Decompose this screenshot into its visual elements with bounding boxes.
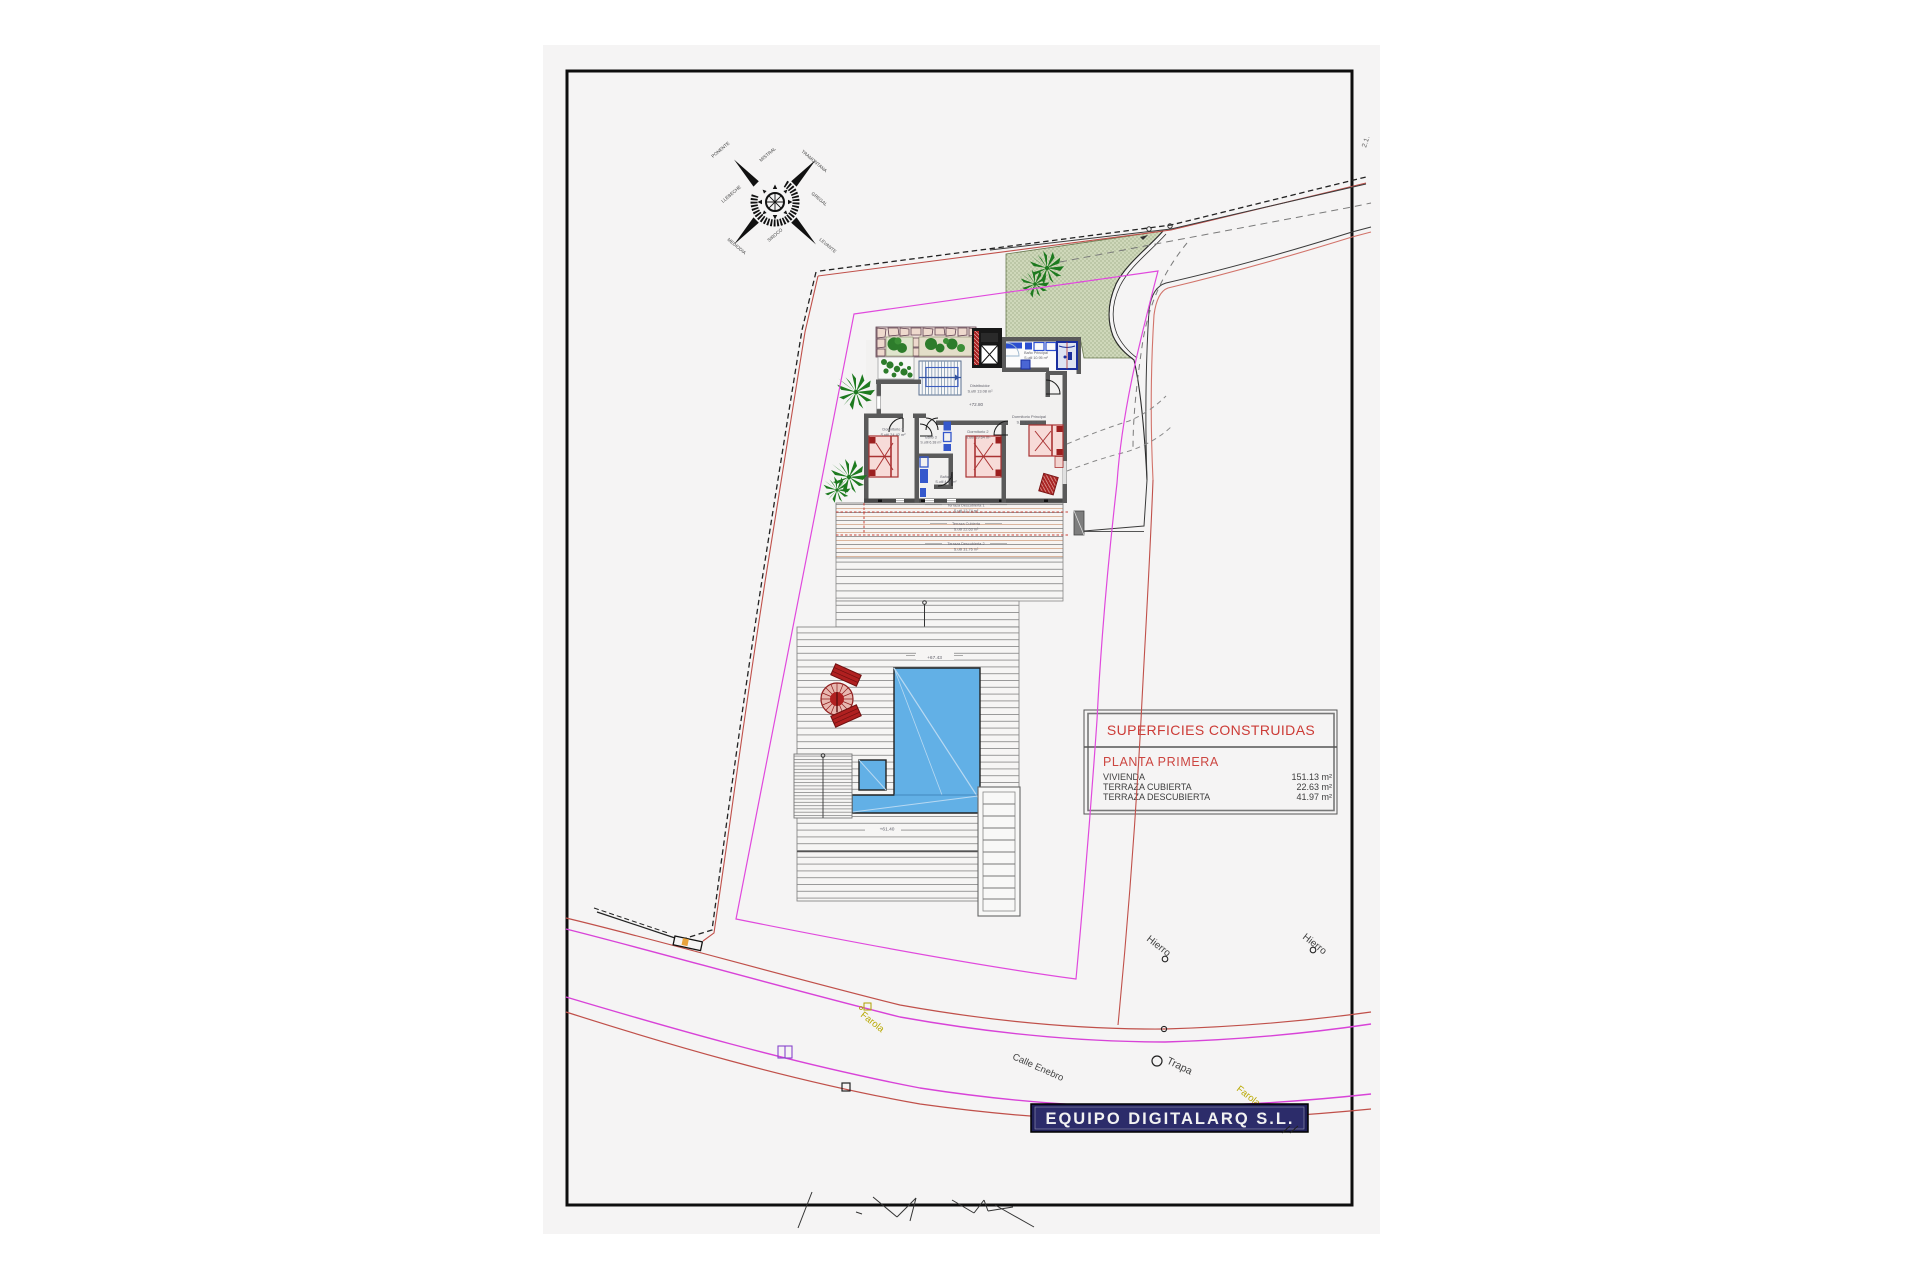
svg-text:EQUIPO DIGITALARQ S.L.: EQUIPO DIGITALARQ S.L. (1045, 1110, 1294, 1128)
svg-text:SUPERFICIES CONSTRUIDAS: SUPERFICIES CONSTRUIDAS (1107, 722, 1315, 738)
svg-text:TERRAZA CUBIERTA: TERRAZA CUBIERTA (1103, 782, 1192, 792)
svg-text:S.util 12.74 m²: S.util 12.74 m² (954, 509, 979, 513)
svg-text:S.util 24.42 m²: S.util 24.42 m² (880, 432, 906, 437)
svg-text:Baño 2: Baño 2 (940, 475, 951, 479)
svg-text:S.util 13.08 m²: S.util 13.08 m² (967, 389, 993, 394)
svg-text:S.util 6.38 m²: S.util 6.38 m² (920, 441, 942, 445)
svg-text:Baño Principal: Baño Principal (1024, 351, 1048, 355)
svg-text:Terraza Descubierta 1: Terraza Descubierta 1 (947, 504, 984, 508)
svg-text:Distribuidor: Distribuidor (970, 383, 990, 388)
svg-text:S.util 26.90 m²: S.util 26.90 m² (1016, 420, 1042, 425)
svg-text:Terraza Descubierta 2: Terraza Descubierta 2 (947, 542, 984, 546)
svg-text:S.util 31.76 m²: S.util 31.76 m² (954, 548, 979, 552)
svg-text:VIVIENDA: VIVIENDA (1103, 772, 1145, 782)
svg-text:41.97 m²: 41.97 m² (1296, 792, 1332, 802)
svg-text:S.util 19.64 m²: S.util 19.64 m² (965, 435, 991, 440)
svg-text:Baño 3: Baño 3 (925, 436, 936, 440)
svg-text:+61.40: +61.40 (880, 827, 895, 833)
svg-text:151.13 m²: 151.13 m² (1291, 772, 1332, 782)
svg-text:S.util 22.63 m²: S.util 22.63 m² (954, 528, 979, 532)
svg-text:Dormitorio 3: Dormitorio 3 (882, 427, 903, 432)
svg-text:Dormitorio 2: Dormitorio 2 (967, 429, 988, 434)
svg-text:+67.43: +67.43 (927, 655, 942, 661)
svg-text:+72.80: +72.80 (969, 402, 984, 407)
svg-text:TERRAZA DESCUBIERTA: TERRAZA DESCUBIERTA (1103, 792, 1210, 802)
svg-text:S.util 10.95 m²: S.util 10.95 m² (1024, 356, 1049, 360)
svg-text:Dormitorio Principal: Dormitorio Principal (1012, 414, 1046, 419)
svg-text:PLANTA PRIMERA: PLANTA PRIMERA (1103, 755, 1219, 769)
svg-text:Terraza Cubierta: Terraza Cubierta (952, 522, 981, 526)
svg-text:22.63 m²: 22.63 m² (1296, 782, 1332, 792)
svg-text:S.util 4.38 m²: S.util 4.38 m² (935, 480, 957, 484)
